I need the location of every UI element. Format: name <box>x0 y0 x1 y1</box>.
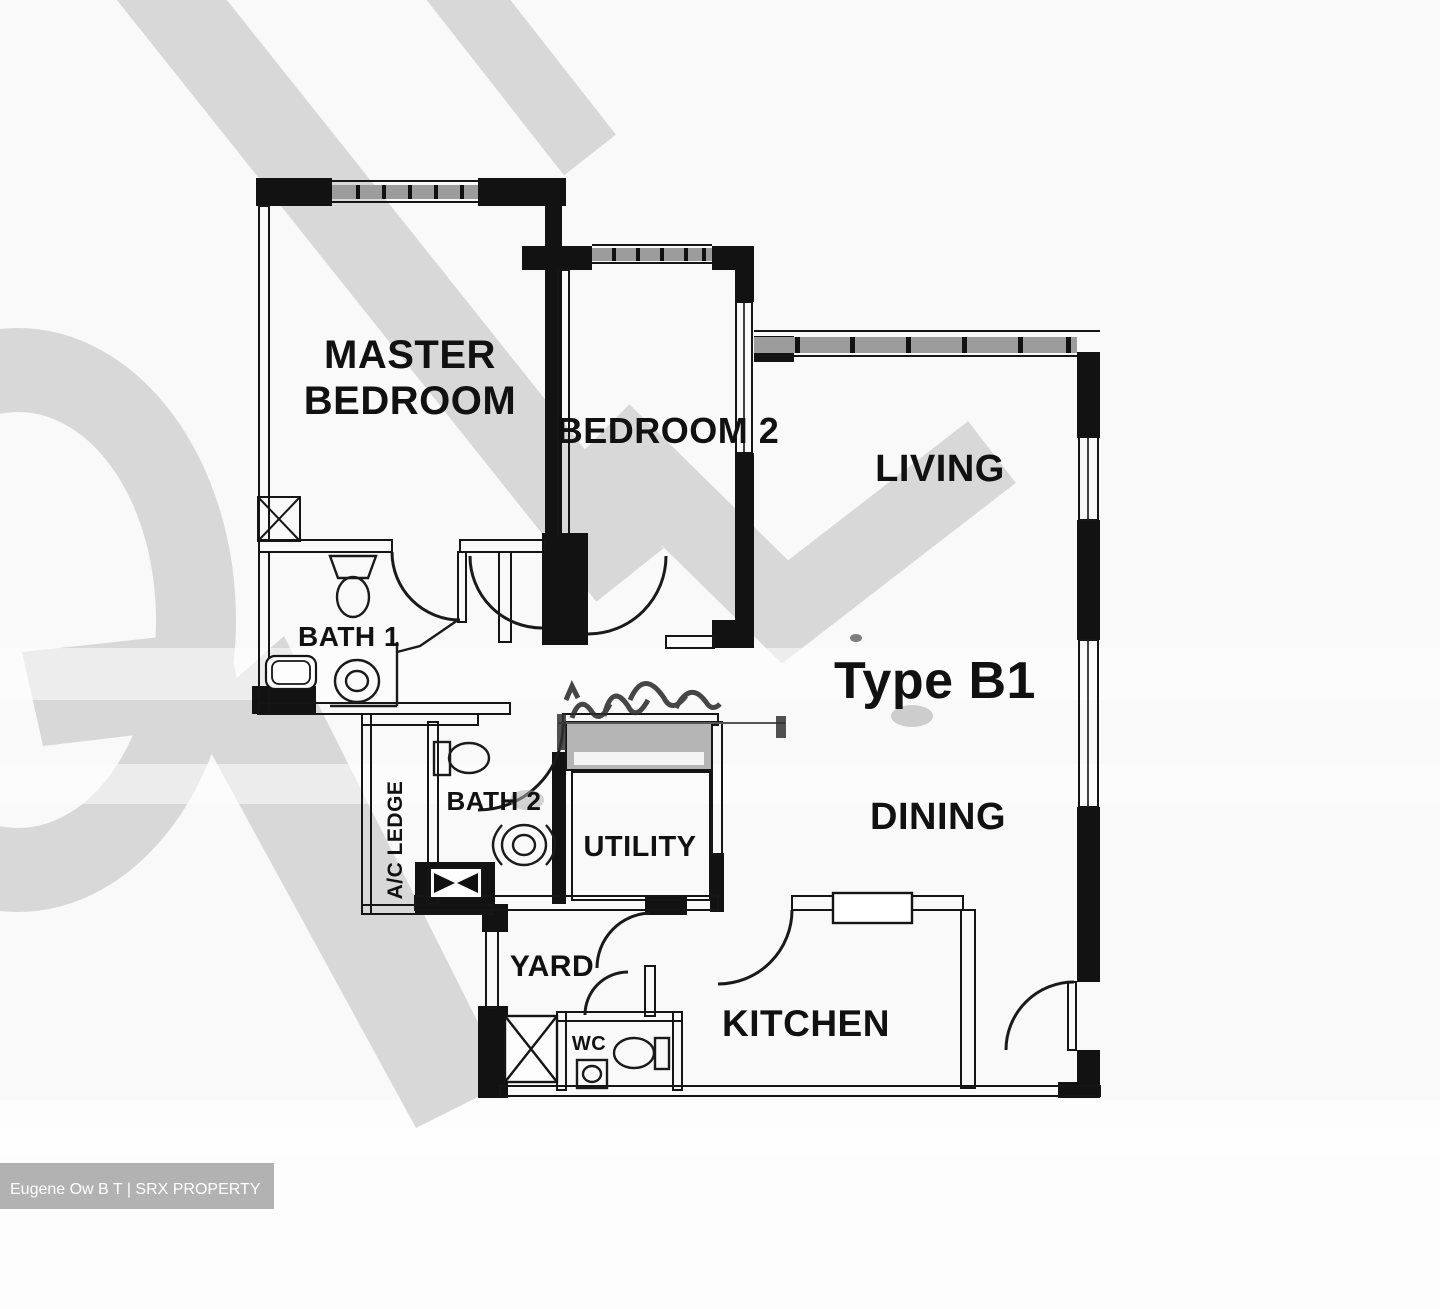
wall-right-seg1 <box>1077 352 1100 438</box>
label-kitchen: KITCHEN <box>722 1003 890 1044</box>
utility-shelf-stripe <box>574 752 704 765</box>
dimension-end-left <box>557 714 566 750</box>
wall-br2-bottom-corner <box>712 620 754 648</box>
wall-mb-top-right <box>478 178 566 206</box>
credit-bar-text: Eugene Ow B T | SRX PROPERTY <box>10 1181 261 1198</box>
wall-hall-door-jamb <box>542 533 588 645</box>
label-wc: WC <box>572 1033 606 1055</box>
label-living: LIVING <box>875 448 1005 490</box>
floorplan-svg: MASTER BEDROOM BEDROOM 2 LIVING Type B1 … <box>0 0 1440 1309</box>
label-bath2: BATH 2 <box>447 786 542 816</box>
wall-br2-top-left <box>522 246 592 270</box>
stray-dot <box>850 634 862 642</box>
label-dining: DINING <box>870 796 1006 838</box>
label-master-bedroom-line1: MASTER <box>324 333 496 377</box>
wall-bath2-utility-divider <box>552 752 566 904</box>
cased-opening-kitchen <box>833 893 912 923</box>
label-utility: UTILITY <box>583 831 696 863</box>
label-bedroom2: BEDROOM 2 <box>557 410 780 451</box>
dimension-end-right <box>776 716 786 738</box>
wall-right-seg2 <box>1077 520 1100 640</box>
label-ac-ledge: A/C LEDGE <box>384 781 407 900</box>
wall-bath1-corner-block <box>252 686 316 714</box>
label-master-bedroom-line2: BEDROOM <box>304 379 516 423</box>
wall-right-seg3 <box>1077 807 1100 982</box>
wall-kitchen-door-jamb <box>645 895 687 915</box>
window-br2-top <box>592 248 712 261</box>
wall-br2-right-upper <box>735 246 754 302</box>
label-bath1: BATH 1 <box>298 621 400 652</box>
wall-br2-right-lower <box>735 453 754 648</box>
wall-yard-left-top <box>482 904 508 932</box>
label-unit-type: Type B1 <box>834 652 1036 710</box>
window-living-top <box>754 337 1077 353</box>
label-yard: YARD <box>510 950 594 983</box>
wall-yard-left-bottom <box>478 1006 508 1098</box>
floorplan-scan-page: MASTER BEDROOM BEDROOM 2 LIVING Type B1 … <box>0 0 1440 1309</box>
window-mb-top <box>332 185 478 199</box>
wall-mb-top-left <box>256 178 332 206</box>
credit-bar: Eugene Ow B T | SRX PROPERTY <box>0 1163 274 1209</box>
